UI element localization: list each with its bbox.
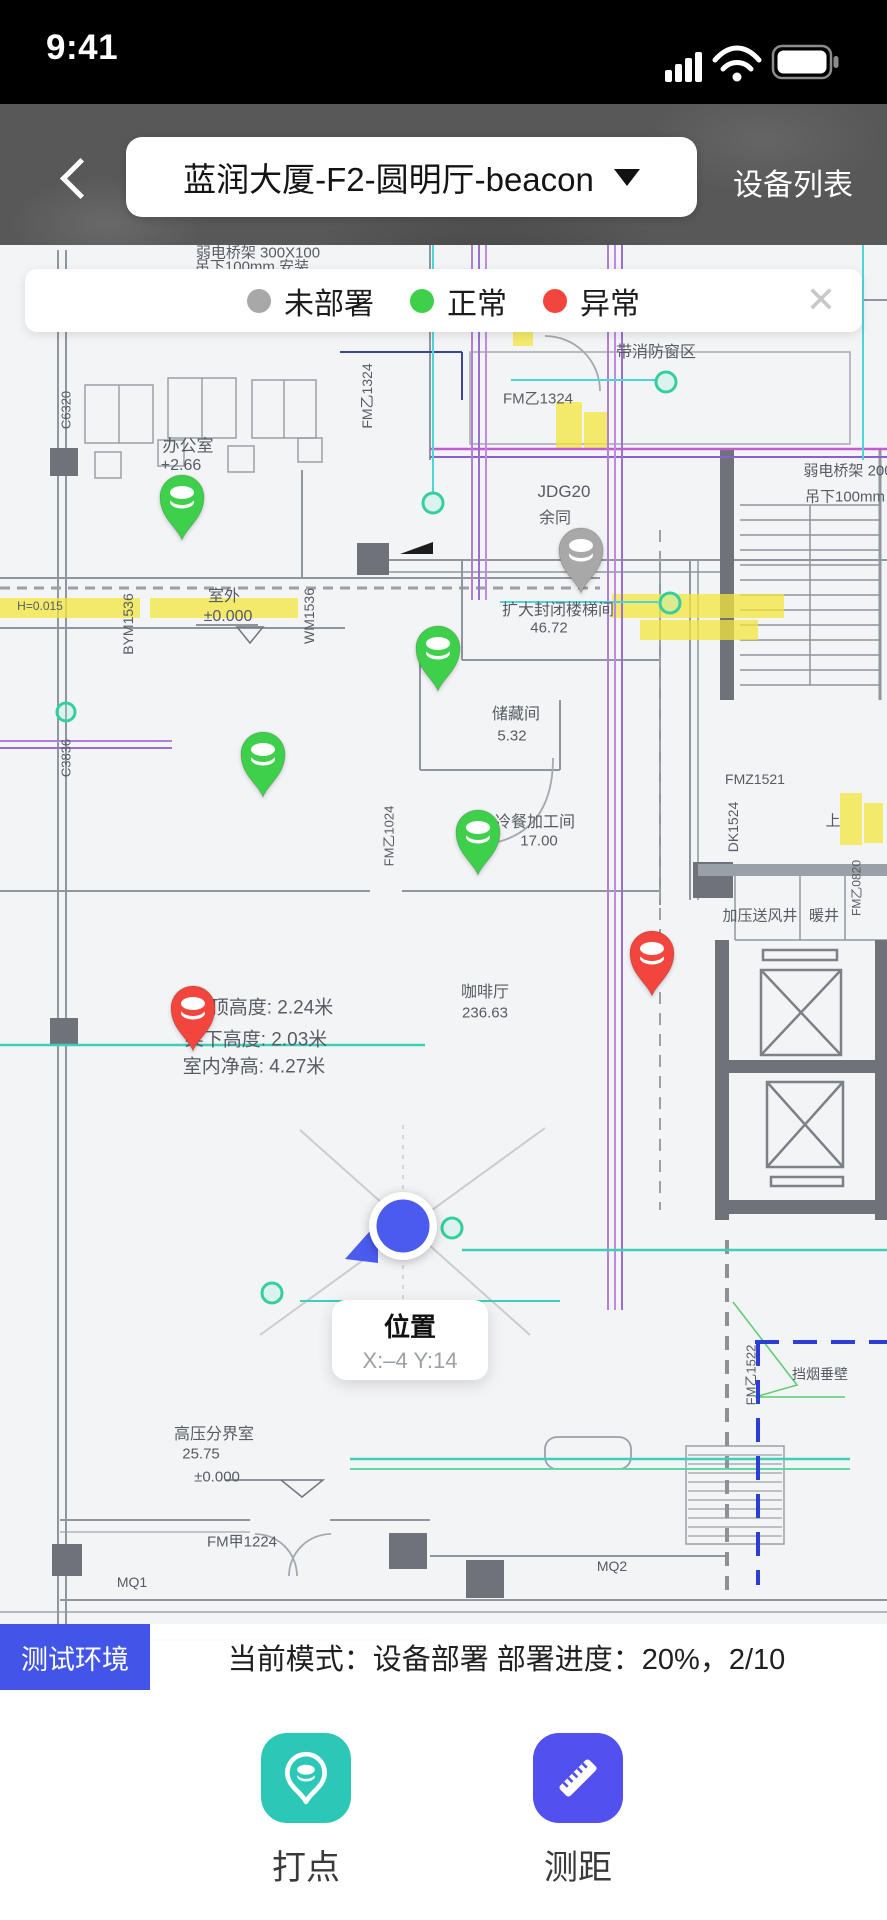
device-pin-normal[interactable] bbox=[413, 623, 463, 693]
app-screen: 弱电桥架 300X100吊下100mm 安装带消防窗区FM乙1324FM乙132… bbox=[0, 0, 887, 1920]
legend-item-label: 正常 bbox=[447, 279, 507, 323]
mark-point-button[interactable] bbox=[261, 1733, 351, 1823]
position-tooltip: 位置 X:–4 Y:14 bbox=[332, 1300, 488, 1380]
legend-status-dot bbox=[247, 289, 271, 313]
device-pin-normal[interactable] bbox=[453, 807, 503, 877]
measure-distance-button[interactable] bbox=[533, 1733, 623, 1823]
back-chevron-icon[interactable] bbox=[60, 158, 101, 199]
legend-item-label: 异常 bbox=[580, 279, 640, 323]
mark-point-label: 打点 bbox=[261, 1840, 351, 1889]
tooltip-coordinates: X:–4 Y:14 bbox=[362, 1348, 457, 1374]
wifi-icon bbox=[715, 48, 759, 82]
ruler-icon bbox=[550, 1750, 606, 1806]
dropdown-caret-icon bbox=[614, 169, 640, 186]
device-pin-normal[interactable] bbox=[157, 472, 207, 542]
environment-badge: 测试环境 bbox=[0, 1624, 150, 1690]
status-icons bbox=[627, 0, 887, 104]
legend-item: 未部署 bbox=[247, 279, 374, 323]
legend-status-dot bbox=[543, 289, 567, 313]
device-pin-normal[interactable] bbox=[238, 729, 288, 799]
status-bar: 9:41 bbox=[0, 0, 887, 104]
legend-item: 正常 bbox=[410, 279, 507, 323]
mode-progress-text: 当前模式：设备部署 部署进度：20%，2/10 bbox=[150, 1624, 887, 1690]
signal-bars-icon bbox=[665, 52, 702, 82]
bottom-action-sheet: 打点 测距 bbox=[0, 1690, 887, 1920]
tooltip-title: 位置 bbox=[384, 1307, 436, 1344]
device-pin-undeployed[interactable] bbox=[556, 525, 606, 595]
close-icon[interactable]: ✕ bbox=[806, 279, 836, 321]
legend-item-label: 未部署 bbox=[284, 279, 374, 323]
map-selector-dropdown[interactable]: 蓝润大厦-F2-圆明厅-beacon bbox=[126, 137, 697, 217]
deployment-info-bar: 测试环境 当前模式：设备部署 部署进度：20%，2/10 bbox=[0, 1624, 887, 1690]
legend-bar: 未部署正常异常 ✕ bbox=[25, 269, 862, 332]
device-list-button[interactable]: 设备列表 bbox=[733, 160, 853, 204]
legend-status-dot bbox=[410, 289, 434, 313]
legend-items: 未部署正常异常 bbox=[247, 279, 640, 323]
status-time: 9:41 bbox=[46, 28, 118, 68]
beacon-pin-icon bbox=[278, 1750, 334, 1806]
measure-distance-label: 测距 bbox=[533, 1840, 623, 1889]
device-pin-abnormal[interactable] bbox=[168, 983, 218, 1053]
battery-icon bbox=[773, 46, 839, 78]
device-pin-abnormal[interactable] bbox=[627, 928, 677, 998]
map-selector-title: 蓝润大厦-F2-圆明厅-beacon bbox=[183, 153, 594, 201]
nav-header: 蓝润大厦-F2-圆明厅-beacon 设备列表 bbox=[0, 104, 887, 245]
legend-item: 异常 bbox=[543, 279, 640, 323]
location-marker[interactable] bbox=[333, 1156, 473, 1296]
